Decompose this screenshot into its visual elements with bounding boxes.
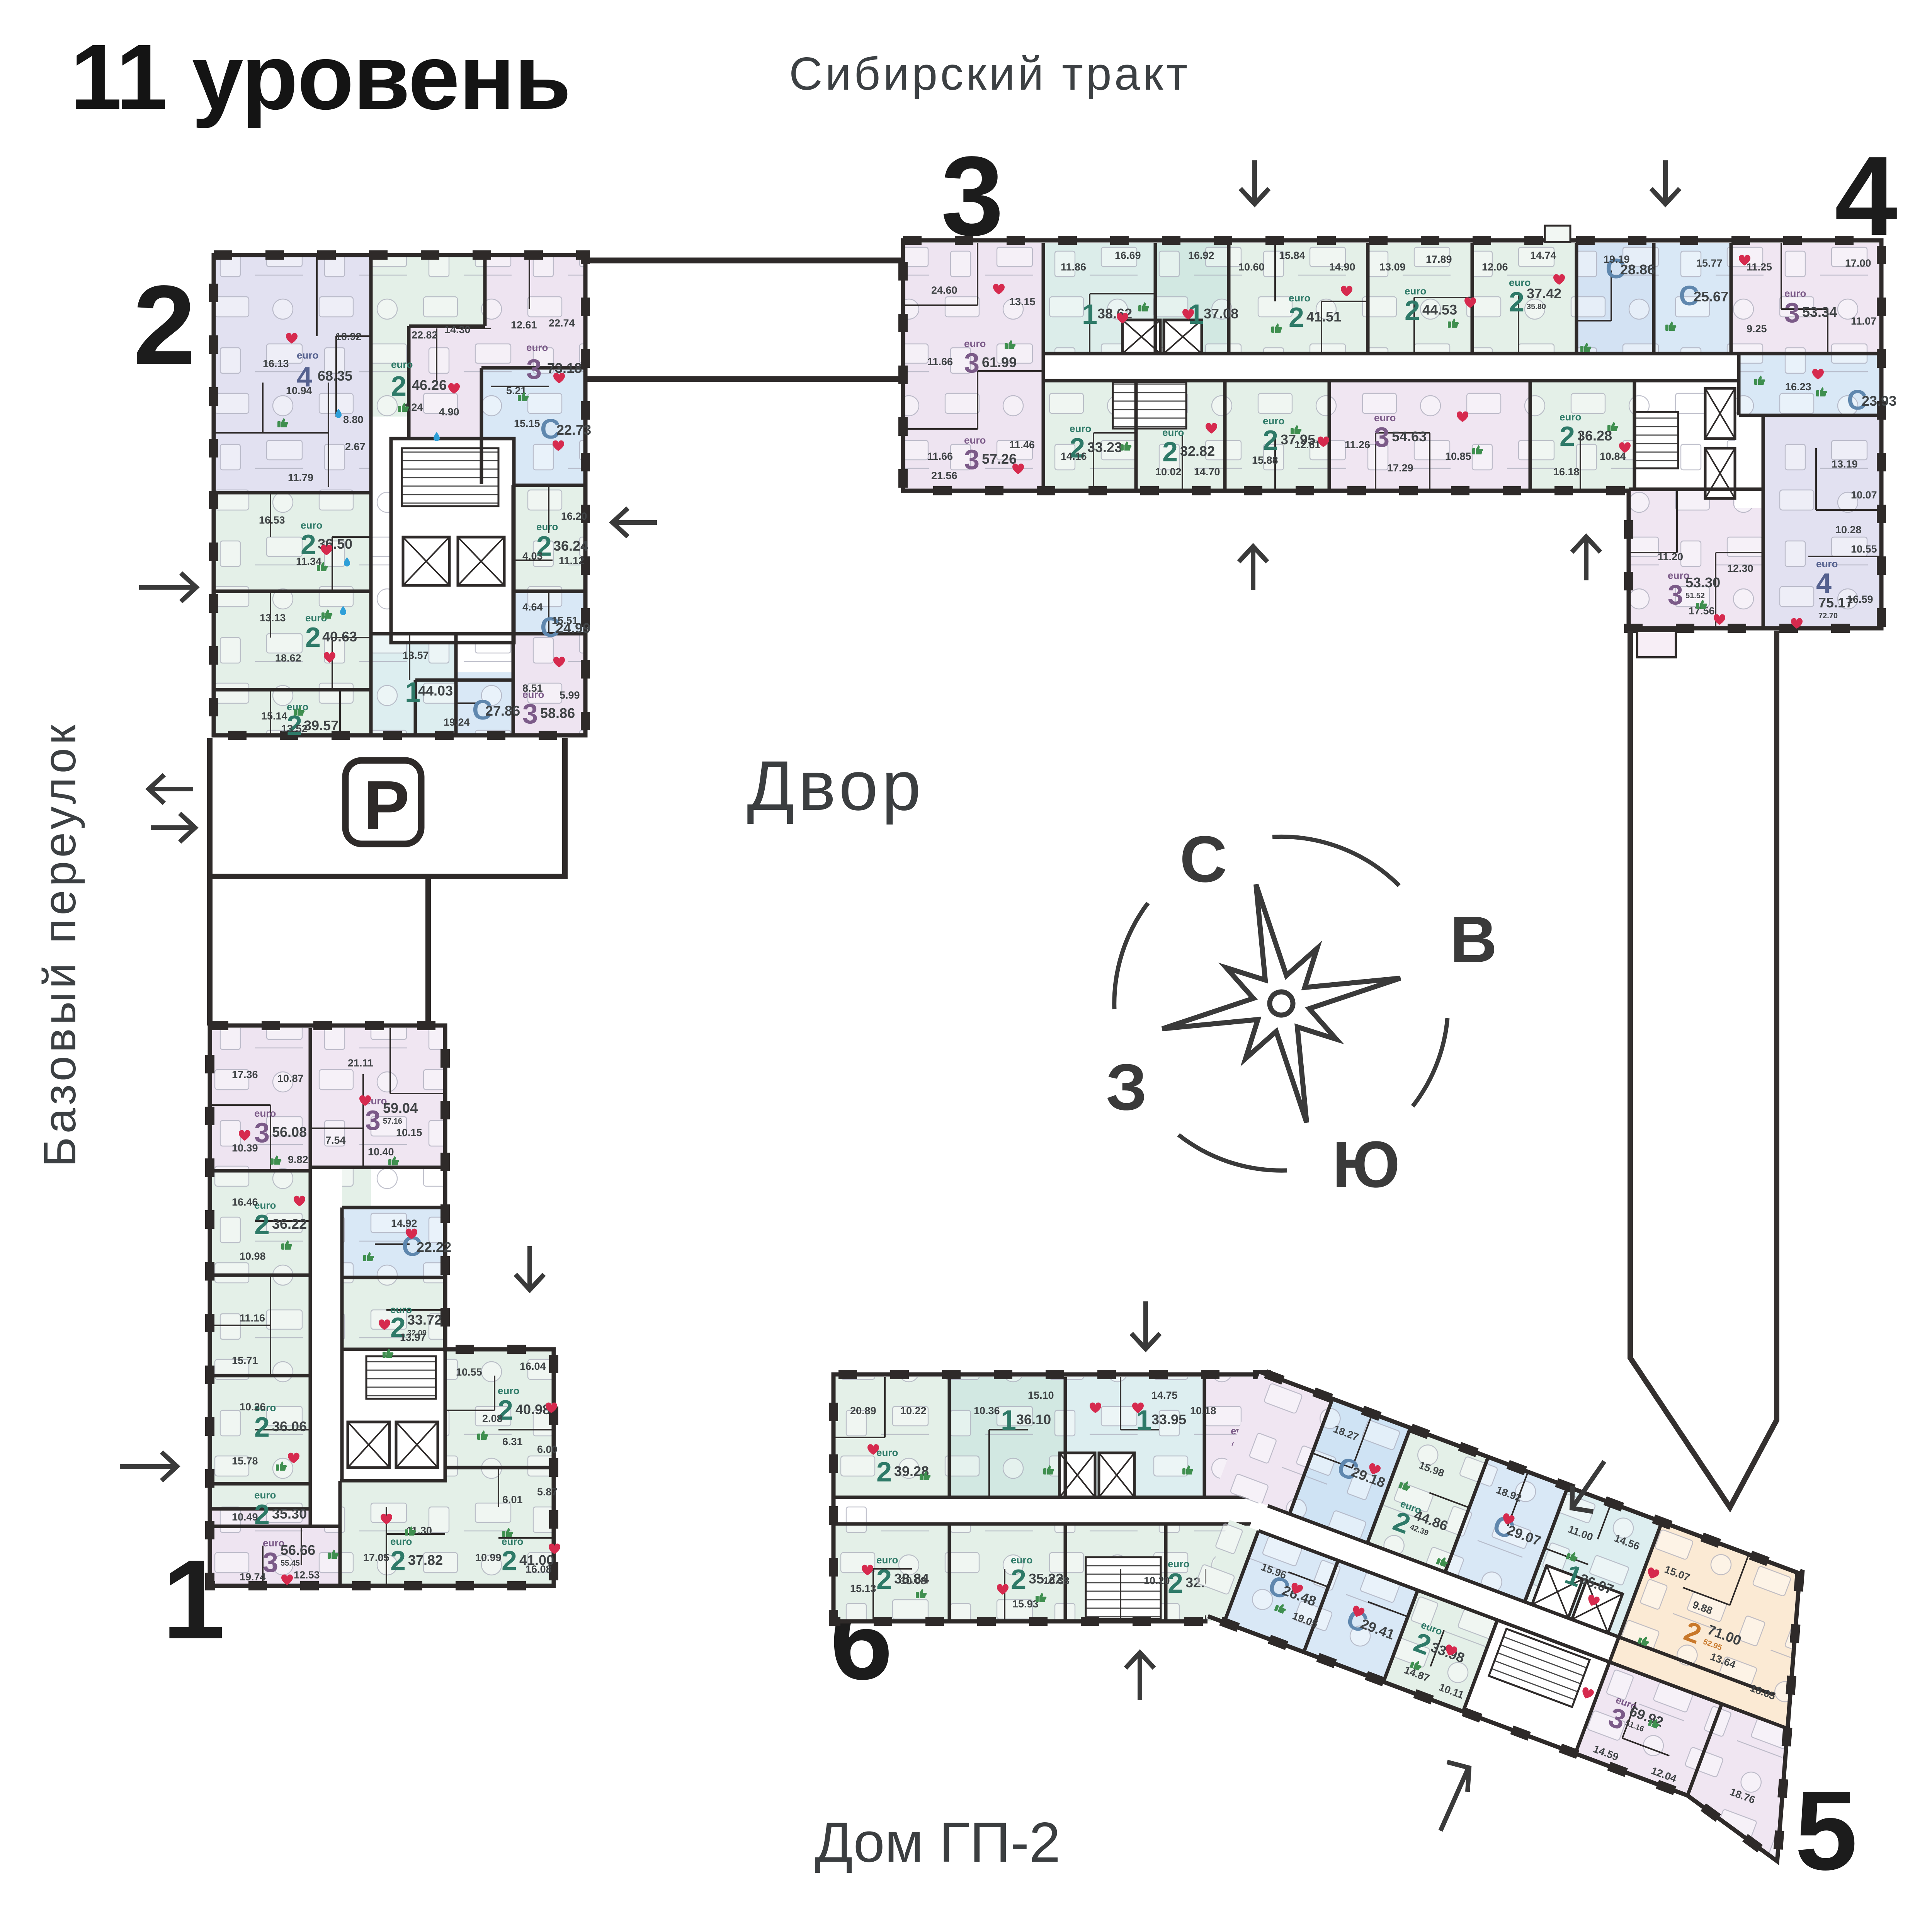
svg-text:7.54: 7.54 — [325, 1134, 346, 1146]
svg-text:13.52: 13.52 — [281, 723, 308, 735]
svg-text:14.70: 14.70 — [1194, 466, 1220, 478]
svg-text:euro: euro — [391, 359, 413, 370]
svg-text:3: 3 — [526, 354, 542, 385]
svg-text:2: 2 — [254, 1209, 270, 1240]
svg-text:37.08: 37.08 — [1204, 306, 1238, 321]
svg-text:46.26: 46.26 — [412, 377, 447, 393]
svg-text:Ю: Ю — [1332, 1128, 1400, 1201]
svg-text:17.29: 17.29 — [1387, 462, 1413, 474]
svg-text:2: 2 — [1263, 425, 1278, 456]
svg-text:3: 3 — [964, 444, 980, 475]
svg-text:15.78: 15.78 — [232, 1455, 258, 1467]
svg-text:35.30: 35.30 — [272, 1506, 307, 1522]
svg-text:56.08: 56.08 — [272, 1124, 307, 1140]
svg-text:15.71: 15.71 — [232, 1355, 258, 1366]
svg-text:1: 1 — [1082, 299, 1097, 330]
svg-text:33.95: 33.95 — [1151, 1412, 1186, 1427]
svg-text:11.86: 11.86 — [1061, 261, 1086, 273]
svg-text:13.57: 13.57 — [403, 650, 429, 661]
svg-text:6.00: 6.00 — [537, 1444, 558, 1455]
svg-text:33.23: 33.23 — [1087, 439, 1122, 455]
svg-text:2: 2 — [876, 1457, 892, 1488]
svg-text:2: 2 — [133, 262, 196, 388]
svg-text:16.18: 16.18 — [1553, 466, 1580, 478]
svg-text:10.60: 10.60 — [1238, 261, 1265, 273]
svg-text:6.31: 6.31 — [502, 1436, 523, 1447]
svg-text:44.03: 44.03 — [418, 683, 453, 699]
svg-text:17.89: 17.89 — [1426, 253, 1452, 265]
svg-text:17.00: 17.00 — [1845, 257, 1871, 269]
svg-text:С: С — [1180, 823, 1227, 896]
svg-text:12.06: 12.06 — [1482, 261, 1508, 273]
svg-text:10.22: 10.22 — [900, 1405, 927, 1417]
svg-text:37.42: 37.42 — [1527, 286, 1561, 301]
svg-text:8.51: 8.51 — [522, 682, 543, 694]
svg-text:3: 3 — [522, 699, 538, 730]
svg-text:2: 2 — [502, 1546, 517, 1577]
svg-text:14.90: 14.90 — [1329, 261, 1355, 273]
svg-text:36.22: 36.22 — [272, 1216, 307, 1232]
svg-text:15.84: 15.84 — [1279, 250, 1305, 261]
svg-text:13.19: 13.19 — [1832, 458, 1858, 470]
svg-text:35.80: 35.80 — [1527, 303, 1546, 311]
svg-text:2: 2 — [305, 622, 321, 653]
svg-text:10.02: 10.02 — [1155, 466, 1182, 478]
svg-text:11.25: 11.25 — [1747, 261, 1772, 273]
svg-text:3: 3 — [365, 1105, 381, 1136]
svg-text:22.82: 22.82 — [412, 329, 438, 341]
svg-text:39.57: 39.57 — [304, 718, 338, 733]
svg-text:16.92: 16.92 — [1188, 250, 1214, 261]
svg-text:2: 2 — [1405, 295, 1420, 326]
svg-text:11.66: 11.66 — [927, 356, 953, 367]
svg-text:P: P — [363, 767, 410, 844]
svg-text:41.51: 41.51 — [1306, 309, 1341, 325]
svg-text:2: 2 — [1560, 421, 1575, 452]
svg-text:10.92: 10.92 — [335, 331, 362, 342]
svg-text:73.18: 73.18 — [547, 360, 582, 376]
svg-text:22.73: 22.73 — [556, 422, 591, 438]
svg-text:10.99: 10.99 — [475, 1552, 502, 1563]
svg-text:12.30: 12.30 — [1727, 563, 1753, 574]
svg-text:68.35: 68.35 — [318, 368, 352, 384]
svg-text:21.56: 21.56 — [931, 470, 957, 481]
svg-text:16.59: 16.59 — [1847, 594, 1873, 605]
svg-text:15.77: 15.77 — [1696, 257, 1723, 269]
svg-text:19.74: 19.74 — [240, 1571, 266, 1583]
svg-text:44.53: 44.53 — [1422, 302, 1457, 318]
svg-text:10.84: 10.84 — [1600, 451, 1626, 462]
svg-text:2.67: 2.67 — [345, 441, 366, 452]
svg-text:11.66: 11.66 — [927, 451, 953, 462]
svg-text:13.97: 13.97 — [400, 1332, 426, 1343]
svg-text:10.07: 10.07 — [1851, 489, 1877, 501]
svg-text:euro: euro — [526, 342, 548, 353]
svg-text:2: 2 — [254, 1412, 270, 1443]
svg-text:10.26: 10.26 — [240, 1401, 266, 1413]
svg-text:10.39: 10.39 — [232, 1142, 258, 1154]
svg-text:3: 3 — [1784, 298, 1800, 328]
svg-text:10.49: 10.49 — [232, 1511, 258, 1523]
svg-text:13.15: 13.15 — [1009, 296, 1036, 308]
svg-text:3: 3 — [1668, 580, 1683, 611]
svg-text:19.19: 19.19 — [1604, 253, 1630, 265]
svg-text:40.98: 40.98 — [515, 1401, 550, 1417]
svg-text:11.46: 11.46 — [1009, 439, 1035, 451]
svg-text:25.67: 25.67 — [1694, 289, 1728, 304]
svg-text:18.62: 18.62 — [275, 652, 301, 664]
svg-text:23.93: 23.93 — [1862, 393, 1896, 409]
svg-text:16.46: 16.46 — [232, 1196, 258, 1208]
svg-text:16.04: 16.04 — [520, 1361, 546, 1372]
svg-text:11.20: 11.20 — [1658, 551, 1683, 563]
svg-text:16.53: 16.53 — [259, 514, 285, 526]
svg-text:10.85: 10.85 — [1445, 451, 1471, 462]
svg-text:2: 2 — [1509, 287, 1524, 318]
svg-text:24.60: 24.60 — [931, 284, 957, 296]
svg-text:32.82: 32.82 — [1180, 443, 1215, 459]
svg-text:10.98: 10.98 — [240, 1250, 266, 1262]
svg-text:10.87: 10.87 — [277, 1073, 304, 1084]
svg-text:2: 2 — [1289, 302, 1304, 333]
svg-text:13.13: 13.13 — [260, 612, 286, 624]
svg-text:Базовый переулок: Базовый переулок — [34, 721, 85, 1167]
svg-text:51.52: 51.52 — [1685, 592, 1705, 600]
svg-text:40.63: 40.63 — [322, 629, 357, 645]
svg-text:10.55: 10.55 — [1851, 543, 1877, 555]
svg-text:17.36: 17.36 — [232, 1069, 258, 1080]
svg-text:2: 2 — [1162, 437, 1178, 468]
svg-text:9.82: 9.82 — [288, 1154, 308, 1165]
svg-text:57.26: 57.26 — [982, 451, 1017, 467]
svg-text:11.07: 11.07 — [1851, 315, 1876, 327]
svg-text:12.61: 12.61 — [1294, 439, 1321, 451]
svg-text:15.10: 15.10 — [1028, 1389, 1054, 1401]
svg-text:16.20: 16.20 — [561, 510, 587, 522]
svg-text:5: 5 — [1795, 1767, 1857, 1893]
svg-text:10.36: 10.36 — [974, 1405, 1000, 1417]
svg-text:33.72: 33.72 — [407, 1312, 442, 1328]
svg-text:16.08: 16.08 — [526, 1563, 552, 1575]
svg-text:36.10: 36.10 — [1016, 1412, 1051, 1427]
svg-text:10.55: 10.55 — [456, 1366, 482, 1378]
svg-text:4: 4 — [1816, 568, 1832, 599]
svg-text:36.24: 36.24 — [553, 538, 588, 554]
svg-text:13.09: 13.09 — [1379, 261, 1406, 273]
svg-text:15.15: 15.15 — [514, 418, 540, 429]
svg-text:15.88: 15.88 — [1252, 454, 1278, 466]
svg-text:15.93: 15.93 — [1012, 1598, 1039, 1610]
svg-text:2: 2 — [390, 1546, 406, 1577]
svg-text:14.92: 14.92 — [391, 1218, 417, 1229]
svg-text:2: 2 — [876, 1564, 892, 1595]
svg-text:14.16: 14.16 — [1061, 451, 1087, 462]
svg-text:16.13: 16.13 — [263, 358, 289, 369]
svg-text:53.34: 53.34 — [1802, 304, 1837, 320]
svg-text:euro: euro — [297, 349, 318, 361]
svg-text:10.40: 10.40 — [368, 1146, 394, 1158]
svg-text:16.69: 16.69 — [1115, 250, 1141, 261]
svg-text:57.16: 57.16 — [383, 1117, 402, 1126]
svg-text:12.53: 12.53 — [294, 1569, 320, 1581]
svg-text:8.80: 8.80 — [343, 414, 364, 425]
svg-text:4.03: 4.03 — [522, 550, 543, 562]
svg-text:36.06: 36.06 — [272, 1418, 307, 1434]
svg-text:20.89: 20.89 — [850, 1405, 876, 1417]
svg-text:21.11: 21.11 — [348, 1057, 373, 1069]
svg-text:10.28: 10.28 — [1835, 524, 1862, 536]
svg-text:10.38: 10.38 — [1043, 1575, 1070, 1587]
svg-text:36.28: 36.28 — [1577, 428, 1612, 444]
svg-text:15.14: 15.14 — [261, 710, 287, 722]
svg-text:10.18: 10.18 — [1190, 1405, 1216, 1417]
svg-text:17.05: 17.05 — [363, 1552, 389, 1563]
svg-text:15.13: 15.13 — [850, 1583, 876, 1594]
svg-text:2.08: 2.08 — [482, 1413, 503, 1424]
svg-text:1: 1 — [1001, 1405, 1016, 1436]
svg-text:9.25: 9.25 — [1747, 323, 1767, 335]
svg-text:З: З — [1106, 1051, 1147, 1124]
svg-text:11.16: 11.16 — [240, 1312, 265, 1324]
svg-text:12.61: 12.61 — [511, 319, 537, 331]
svg-text:14.30: 14.30 — [444, 324, 471, 335]
svg-text:56.66: 56.66 — [281, 1542, 315, 1558]
svg-text:22.22: 22.22 — [417, 1239, 451, 1255]
svg-text:4.90: 4.90 — [439, 406, 459, 418]
svg-text:6.01: 6.01 — [502, 1494, 523, 1505]
svg-text:Двор: Двор — [747, 746, 925, 825]
svg-text:3: 3 — [1374, 422, 1389, 453]
svg-text:5.99: 5.99 — [560, 689, 580, 701]
svg-text:3: 3 — [964, 348, 980, 379]
svg-text:59.04: 59.04 — [383, 1100, 418, 1116]
svg-text:55.45: 55.45 — [281, 1559, 300, 1568]
svg-text:27.86: 27.86 — [485, 703, 520, 719]
svg-text:11 уровень: 11 уровень — [70, 25, 570, 129]
svg-text:2: 2 — [391, 371, 406, 402]
svg-text:2: 2 — [1011, 1564, 1026, 1595]
svg-text:10.94: 10.94 — [286, 385, 312, 396]
svg-text:11.12: 11.12 — [559, 555, 584, 566]
svg-text:58.86: 58.86 — [540, 705, 575, 721]
svg-text:11.79: 11.79 — [288, 472, 313, 483]
svg-text:Дом ГП-2: Дом ГП-2 — [815, 1811, 1060, 1874]
svg-text:4.64: 4.64 — [522, 601, 543, 613]
svg-text:14.74: 14.74 — [1530, 250, 1556, 261]
svg-text:10.08: 10.08 — [900, 1575, 927, 1587]
svg-text:Сибирский тракт: Сибирский тракт — [789, 48, 1190, 100]
svg-text:54.63: 54.63 — [1392, 429, 1427, 444]
svg-text:72.70: 72.70 — [1818, 612, 1838, 620]
svg-text:14.75: 14.75 — [1151, 1389, 1178, 1401]
svg-text:37.82: 37.82 — [408, 1552, 443, 1568]
svg-text:16.23: 16.23 — [1785, 381, 1811, 393]
svg-text:53.30: 53.30 — [1685, 575, 1720, 590]
svg-text:В: В — [1450, 903, 1497, 976]
svg-text:22.74: 22.74 — [549, 317, 575, 329]
svg-text:15.51: 15.51 — [552, 615, 578, 626]
svg-text:61.99: 61.99 — [982, 354, 1017, 370]
svg-text:10.15: 10.15 — [396, 1127, 422, 1138]
svg-text:11.26: 11.26 — [1345, 439, 1370, 451]
svg-text:19.24: 19.24 — [444, 716, 470, 728]
svg-text:10.20: 10.20 — [1144, 1575, 1170, 1587]
svg-text:5.87: 5.87 — [537, 1486, 558, 1498]
